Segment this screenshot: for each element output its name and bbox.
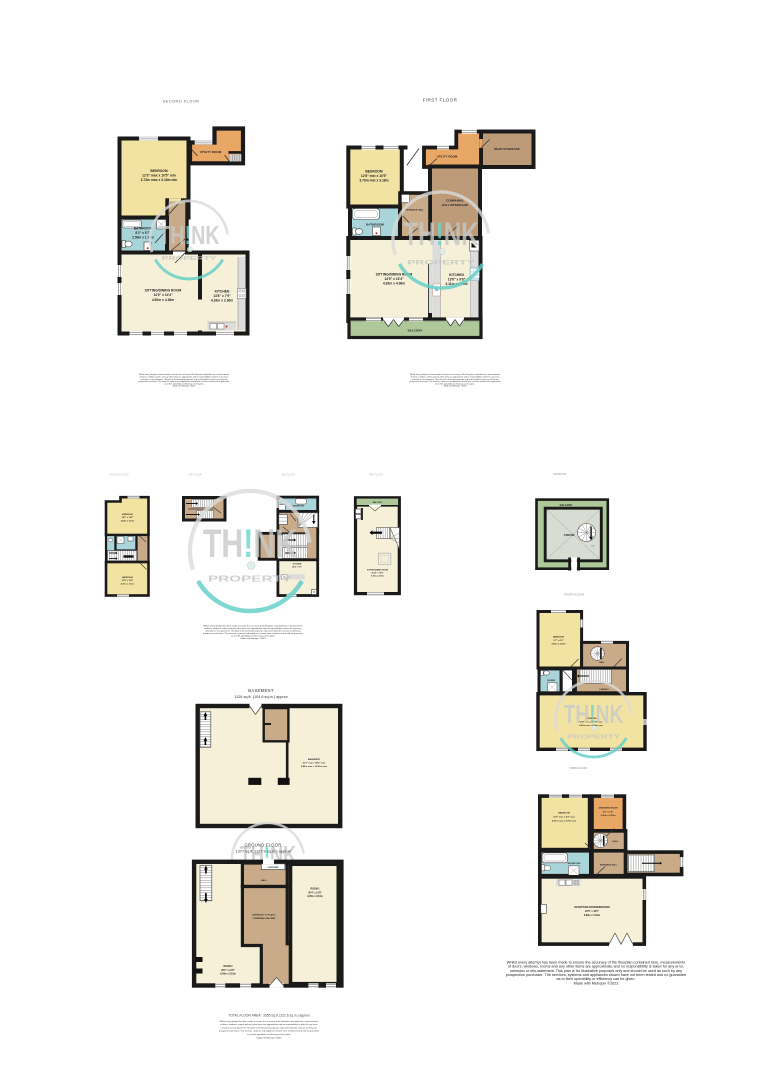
svg-text:1377 sq.ft. (127.9 sq.m.) appr: 1377 sq.ft. (127.9 sq.m.) approx: [235, 849, 290, 854]
svg-text:SHOWER: SHOWER: [547, 680, 556, 682]
svg-text:13'9" x 10'2": 13'9" x 10'2": [122, 580, 134, 582]
svg-text:ROOFTOP: ROOFTOP: [554, 472, 567, 476]
svg-text:of doors, windows, rooms and a: of doors, windows, rooms and any other i…: [220, 1023, 318, 1026]
svg-text:SITTING/DINING ROOM: SITTING/DINING ROOM: [367, 570, 388, 572]
svg-text:COMMUNAL HALLWAY: COMMUNAL HALLWAY: [253, 917, 276, 920]
svg-text:BEDROOM: BEDROOM: [122, 514, 133, 516]
svg-text:LANDING: LANDING: [599, 688, 609, 691]
svg-text:HALL: HALL: [613, 840, 619, 843]
svg-text:BEDROOM: BEDROOM: [558, 813, 570, 815]
svg-text:29'0" x 12'6": 29'0" x 12'6": [221, 970, 235, 972]
svg-text:Made with Metropix ©2023: Made with Metropix ©2023: [257, 1036, 283, 1039]
svg-text:omission or mis-statement. Thi: omission or mis-statement. This plan is …: [205, 629, 301, 632]
svg-text:4.39m x 4.06m: 4.39m x 4.06m: [383, 282, 405, 286]
svg-text:DRESSING ROOM: DRESSING ROOM: [599, 808, 618, 810]
svg-text:BALCONY: BALCONY: [408, 329, 423, 333]
svg-text:KITCHEN: KITCHEN: [449, 273, 464, 277]
svg-text:14'1" x 10'2": 14'1" x 10'2": [122, 516, 134, 519]
svg-text:Made with Metropix ©2023: Made with Metropix ©2023: [241, 637, 267, 640]
svg-text:ATRIUM: ATRIUM: [564, 533, 575, 537]
svg-text:Down: Down: [591, 546, 595, 548]
svg-text:1126 sq.ft. (104.6 sq.m.) appr: 1126 sq.ft. (104.6 sq.m.) approx: [234, 695, 288, 699]
svg-text:BATHROOM: BATHROOM: [568, 862, 581, 865]
svg-text:Made with Metropix ©2023: Made with Metropix ©2023: [444, 385, 467, 388]
svg-text:Whilst every attempt has been: Whilst every attempt has been made to en…: [204, 624, 303, 627]
svg-text:HALL: HALL: [599, 661, 605, 664]
svg-text:ENTRANCE HALL: ENTRANCE HALL: [405, 208, 424, 211]
svg-text:SITTING/DINING ROOM: SITTING/DINING ROOM: [145, 289, 182, 293]
svg-text:GROUND FLOOR: GROUND FLOOR: [109, 474, 129, 477]
svg-text:ROOM 1: ROOM 1: [310, 889, 320, 891]
svg-text:prospective purchaser. The ser: prospective purchaser. The services, sys…: [219, 1030, 320, 1033]
svg-text:20'10" x 13'9": 20'10" x 13'9": [371, 573, 383, 575]
svg-text:2.30m x 2.29m: 2.30m x 2.29m: [601, 815, 616, 817]
svg-text:ENTRANCE TO FLATS /: ENTRANCE TO FLATS /: [252, 914, 276, 917]
svg-text:12'3" max x 10'5" min: 12'3" max x 10'5" min: [142, 174, 176, 178]
svg-text:2ND FLOOR: 2ND FLOOR: [281, 474, 295, 477]
svg-text:BALCONY: BALCONY: [373, 501, 383, 504]
svg-text:3.73m max x 3.18m min: 3.73m max x 3.18m min: [141, 178, 178, 182]
svg-text:THIRD FLOOR: THIRD FLOOR: [569, 766, 587, 770]
svg-text:Whilst every attempt has been: Whilst every attempt has been made to en…: [220, 1020, 319, 1023]
svg-text:REAR STAIRCASE: REAR STAIRCASE: [494, 147, 520, 151]
svg-text:9.49m max x 10.81m max: 9.49m max x 10.81m max: [301, 765, 328, 768]
svg-text:7'6" x 7'6": 7'6" x 7'6": [603, 811, 613, 813]
svg-text:BASEMENT: BASEMENT: [248, 688, 274, 693]
svg-text:2.92m x 2.07m: 2.92m x 2.07m: [551, 644, 565, 646]
svg-text:22'6" x 19'5": 22'6" x 19'5": [585, 910, 599, 913]
svg-text:omission or mis-statement. Thi: omission or mis-statement. This plan is …: [221, 1026, 317, 1029]
svg-text:FIRST FLOOR: FIRST FLOOR: [423, 98, 458, 103]
svg-text:UTILITY ROOM: UTILITY ROOM: [437, 155, 458, 159]
svg-text:31'2" max x 35'6" max: 31'2" max x 35'6" max: [303, 763, 327, 765]
svg-text:BEDROOM: BEDROOM: [553, 637, 564, 639]
svg-text:of doors, windows, rooms and a: of doors, windows, rooms and any other i…: [204, 627, 302, 630]
svg-text:HALL: HALL: [261, 879, 267, 882]
svg-text:CUPBOARD: CUPBOARD: [268, 866, 280, 869]
svg-text:6.86m x 5.92m: 6.86m x 5.92m: [584, 914, 600, 917]
svg-text:Made with Metropix ©2023: Made with Metropix ©2023: [574, 981, 619, 985]
svg-text:prospective purchaser. The ser: prospective purchaser. The services, sys…: [203, 632, 304, 635]
svg-text:UTILITY ROOM: UTILITY ROOM: [200, 150, 222, 154]
svg-text:ROOM 2: ROOM 2: [223, 966, 233, 968]
svg-text:4.29m x 3.10m: 4.29m x 3.10m: [121, 519, 135, 522]
svg-text:3RD FLOOR: 3RD FLOOR: [369, 474, 383, 477]
svg-text:4.50m x 4.36m: 4.50m x 4.36m: [152, 298, 174, 302]
svg-text:SECOND FLOOR: SECOND FLOOR: [163, 99, 200, 104]
svg-text:4.19m x 3.10m: 4.19m x 3.10m: [121, 582, 135, 585]
svg-text:14'9" x 14'4": 14'9" x 14'4": [153, 293, 173, 297]
svg-text:BALCONY: BALCONY: [560, 503, 573, 507]
svg-text:9'7" x 6'9": 9'7" x 6'9": [554, 640, 564, 642]
svg-text:TOTAL FLOOR AREA : 3355 sq.ft.: TOTAL FLOOR AREA : 3355 sq.ft. (311.6 sq…: [228, 1014, 310, 1018]
svg-text:ENTRANCE HALL: ENTRANCE HALL: [600, 864, 618, 867]
svg-text:3.87m max x 2.79m min: 3.87m max x 2.79m min: [552, 821, 577, 823]
svg-text:HALL/STAIRCASE: HALL/STAIRCASE: [442, 203, 468, 207]
svg-text:3.79m min x 3.18m: 3.79m min x 3.18m: [359, 179, 388, 183]
svg-text:1ST FLOOR: 1ST FLOOR: [188, 474, 202, 477]
svg-text:as to their operability or eff: as to their operability or efficiency ca…: [247, 1033, 291, 1036]
svg-text:BATHROOM: BATHROOM: [366, 223, 384, 227]
svg-text:13'8" x 7'9": 13'8" x 7'9": [213, 294, 231, 298]
svg-text:BEDROOM: BEDROOM: [150, 169, 167, 173]
svg-text:4.16m x 2.36m: 4.16m x 2.36m: [211, 299, 233, 303]
svg-text:BEDROOM: BEDROOM: [365, 170, 382, 174]
svg-text:GROUND FLOOR: GROUND FLOOR: [244, 843, 281, 848]
svg-text:14'5" x 13'4": 14'5" x 13'4": [384, 277, 404, 281]
svg-text:Made with Metropix ©2023: Made with Metropix ©2023: [173, 385, 196, 388]
svg-text:9.25m x 3.81m: 9.25m x 3.81m: [307, 896, 323, 898]
svg-text:as to their operability or eff: as to their operability or efficiency ca…: [231, 635, 275, 638]
svg-text:6.36m x 4.19m: 6.36m x 4.19m: [371, 575, 384, 578]
svg-text:BASEMENT: BASEMENT: [308, 758, 321, 761]
svg-text:COMMUNAL: COMMUNAL: [446, 199, 464, 203]
svg-text:8'2" x 5'7": 8'2" x 5'7": [135, 231, 151, 235]
svg-text:BATHROOM: BATHROOM: [292, 504, 304, 507]
svg-text:FOURTH FLOOR: FOURTH FLOOR: [564, 593, 585, 597]
svg-text:12'9" max x 9'2" max: 12'9" max x 9'2" max: [553, 817, 575, 819]
svg-text:12'6" min x 10'5": 12'6" min x 10'5": [361, 174, 388, 178]
svg-text:30'4" x 12'6": 30'4" x 12'6": [308, 891, 322, 894]
svg-text:RECEPTION ROOM/BEDROOM: RECEPTION ROOM/BEDROOM: [574, 906, 609, 909]
svg-text:KITCHEN: KITCHEN: [215, 290, 230, 294]
svg-text:BEDROOM: BEDROOM: [122, 577, 133, 579]
svg-text:8.84m x 3.81m: 8.84m x 3.81m: [220, 973, 236, 976]
